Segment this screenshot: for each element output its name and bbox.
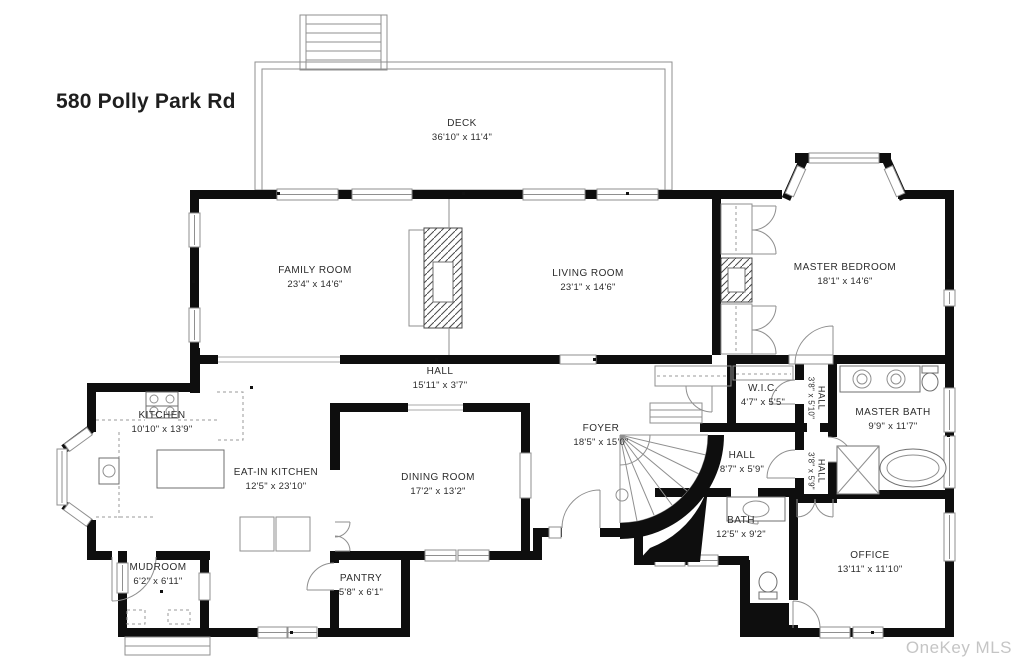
room-label-kitchen: KITCHEN 10'10" x 13'9" [132, 410, 193, 435]
room-label-deck: DECK 36'10" x 11'4" [432, 118, 492, 143]
room-label-hall-center: HALL 8'7" x 5'9" [720, 450, 764, 475]
room-label-hall-upper: HALL 3'8" x 5'10" [805, 377, 826, 419]
room-label-foyer: FOYER 18'5" x 15'0" [573, 423, 628, 448]
room-label-living-room: LIVING ROOM 23'1" x 14'6" [552, 268, 624, 293]
room-label-pantry: PANTRY 5'8" x 6'1" [339, 573, 383, 598]
room-label-hall-main: HALL 15'11" x 3'7" [413, 366, 468, 391]
room-label-office: OFFICE 13'11" x 11'10" [837, 550, 902, 575]
room-label-mudroom: MUDROOM 6'2" x 6'11" [129, 562, 186, 587]
room-label-eat-in-kitchen: EAT-IN KITCHEN 12'5" x 23'10" [234, 467, 318, 492]
room-label-hall-lower: HALL 3'8" x 5'9" [805, 452, 826, 490]
room-label-bath: BATH 12'5" x 9'2" [716, 515, 766, 540]
room-label-master-bath: MASTER BATH 9'9" x 11'7" [855, 407, 930, 432]
room-label-dining-room: DINING ROOM 17'2" x 13'2" [401, 472, 475, 497]
onekey-mls-watermark: OneKey MLS [906, 638, 1012, 658]
room-label-family-room: FAMILY ROOM 23'4" x 14'6" [278, 265, 351, 290]
room-label-master-bedroom: MASTER BEDROOM 18'1" x 14'6" [794, 262, 896, 287]
floor-plan-page: 580 Polly Park Rd DECK 36'10" x 11'4" FA… [0, 0, 1024, 664]
room-label-wic: W.I.C. 4'7" x 5'5" [741, 383, 785, 408]
address-title: 580 Polly Park Rd [56, 90, 236, 114]
deck-outline [255, 15, 672, 190]
